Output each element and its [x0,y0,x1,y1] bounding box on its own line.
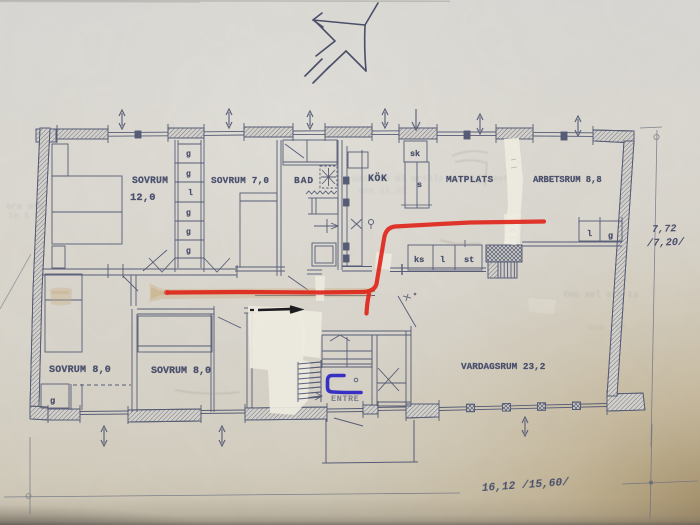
svg-text:g: g [186,150,191,159]
svg-text:SOVRUM 7,0: SOVRUM 7,0 [211,175,269,186]
svg-text:l: l [587,229,592,239]
svg-text:SOVRUM: SOVRUM [132,175,168,186]
svg-text:VARDAGSRUM 23,2: VARDAGSRUM 23,2 [461,361,546,372]
svg-text:l: l [188,189,193,198]
svg-text:7,72: 7,72 [652,224,677,236]
svg-text:g: g [608,231,613,241]
svg-text:ie t: ie t [8,211,30,221]
svg-text:g: g [50,396,55,406]
svg-text:s: s [417,180,422,190]
svg-text:SOVRUM 8,0: SOVRUM 8,0 [49,365,111,376]
svg-text:BAD: BAD [294,175,314,186]
svg-text:l: l [440,255,445,265]
svg-text:g: g [186,247,191,256]
svg-text:g: g [186,228,191,237]
svg-text:ARBETSRUM 8,8: ARBETSRUM 8,8 [533,175,602,185]
svg-text:MATPLATS: MATPLATS [446,174,493,185]
svg-text:SOVRUM 8,0: SOVRUM 8,0 [151,366,211,377]
svg-text:st: st [464,255,474,265]
svg-text:g: g [186,209,191,218]
svg-text:/7,20/: /7,20/ [646,237,686,250]
svg-text:ENTRE: ENTRE [331,394,359,404]
svg-text:sk: sk [410,149,420,159]
svg-text:ks: ks [414,255,424,265]
svg-text:12,0: 12,0 [130,192,156,204]
svg-text:KÖK: KÖK [368,173,387,184]
svg-text:tno sel erh ts: tno sel erh ts [563,290,639,300]
svg-text:eso it nt: eso it nt [358,186,407,196]
svg-text:8): 8) [165,122,176,132]
svg-text:g: g [186,170,191,179]
svg-text:nse tte: nse tte [588,323,626,333]
